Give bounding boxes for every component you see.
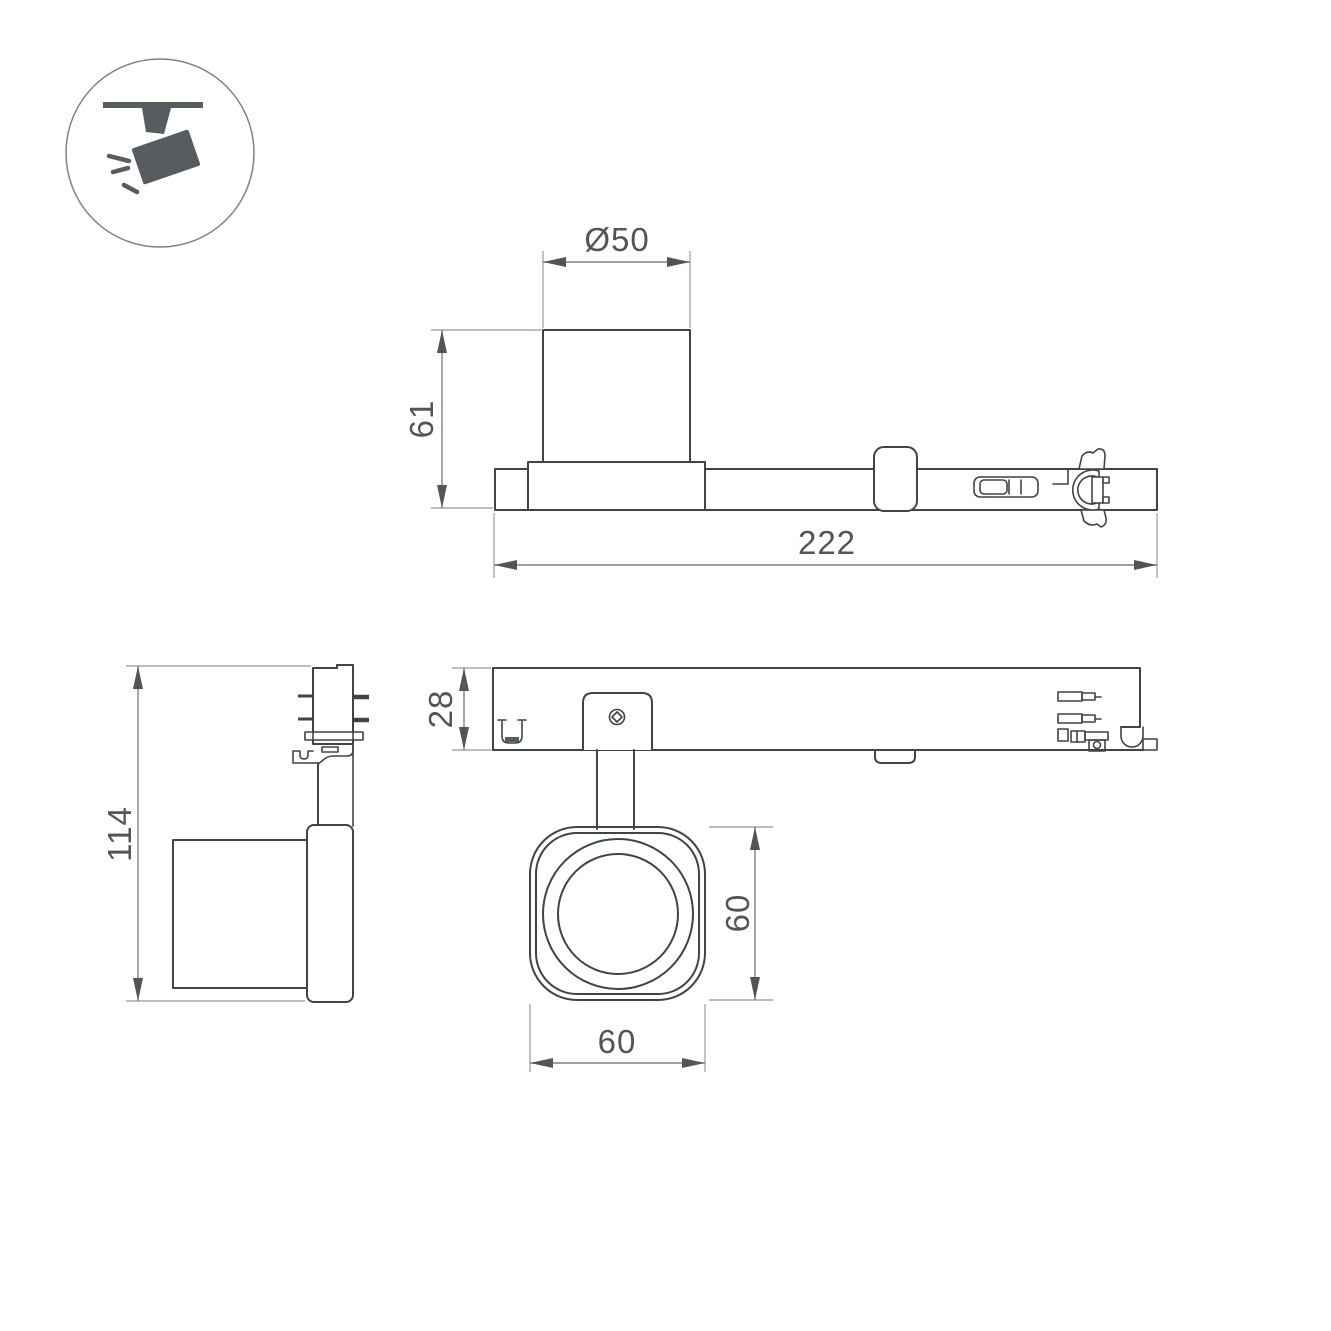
contact-pin (1058, 692, 1082, 701)
arrowhead (437, 330, 447, 353)
arrowhead (543, 257, 566, 267)
terminal-bar (1085, 732, 1108, 740)
driver-housing (307, 825, 353, 1002)
dimension-text-overall-height: 114 (101, 806, 138, 862)
bottom-view: 28 (422, 668, 1157, 1072)
end-latch (1073, 449, 1109, 527)
latch-pin (1094, 742, 1101, 749)
arrowhead (494, 560, 517, 570)
latch-foot (1103, 477, 1109, 483)
lamp-cylinder (543, 330, 690, 462)
arrowhead (530, 1058, 553, 1068)
arrowhead (459, 668, 469, 691)
arrowhead (459, 727, 469, 750)
adapter-tab (322, 747, 338, 752)
adapter-hook (293, 751, 318, 763)
latch-bottom-flange (1081, 510, 1106, 527)
latch-foot (1103, 497, 1109, 503)
track-end-lug (1143, 739, 1157, 750)
head-outline-inner (536, 833, 699, 994)
mount-clip (874, 447, 917, 511)
dimension-text-length: 222 (798, 524, 856, 561)
lamp-head (173, 840, 307, 988)
dimension-text-height: 61 (403, 400, 440, 439)
latch-top-flange (1079, 449, 1105, 469)
arrowhead (750, 977, 760, 1000)
track-body (493, 668, 1157, 763)
lamp-head-front (530, 827, 705, 1000)
arrowhead (133, 978, 143, 1001)
contact-pin-tip (1082, 715, 1095, 722)
track-end-notch (1121, 727, 1143, 747)
arrowhead (133, 666, 143, 689)
drawing-svg: Ø50 61 222 114 (0, 0, 1331, 1331)
technical-drawing-page: Ø50 61 222 114 (0, 0, 1331, 1331)
contact-pin (1058, 714, 1082, 723)
arrowhead (667, 257, 690, 267)
icon-ceiling-bar (103, 102, 203, 108)
dimension-text-track-height: 28 (422, 690, 459, 729)
arrowhead (682, 1058, 705, 1068)
arrowhead (437, 485, 447, 508)
contact-pin-tip (1082, 693, 1095, 700)
wire-clamp-base (505, 737, 519, 742)
latch-step (1053, 470, 1068, 484)
latch-bar (1092, 477, 1103, 503)
lens-ring (543, 839, 693, 989)
dimension-text-diameter: Ø50 (584, 221, 649, 258)
lamp-base-block (528, 462, 705, 510)
terminal-block (1058, 729, 1068, 741)
dimension-text-head-width: 60 (598, 1023, 637, 1060)
terminal-block (1071, 731, 1085, 742)
front-view: 114 (101, 665, 369, 1002)
track-adapter (293, 665, 369, 764)
side-view: Ø50 61 222 (403, 221, 1157, 578)
track-tab (875, 750, 915, 763)
contact-block (1058, 692, 1108, 751)
arrowhead (1134, 560, 1157, 570)
lens (558, 854, 678, 974)
corner-icon (66, 59, 254, 247)
arrowhead (750, 827, 760, 850)
dimension-text-head-height: 60 (719, 894, 756, 933)
